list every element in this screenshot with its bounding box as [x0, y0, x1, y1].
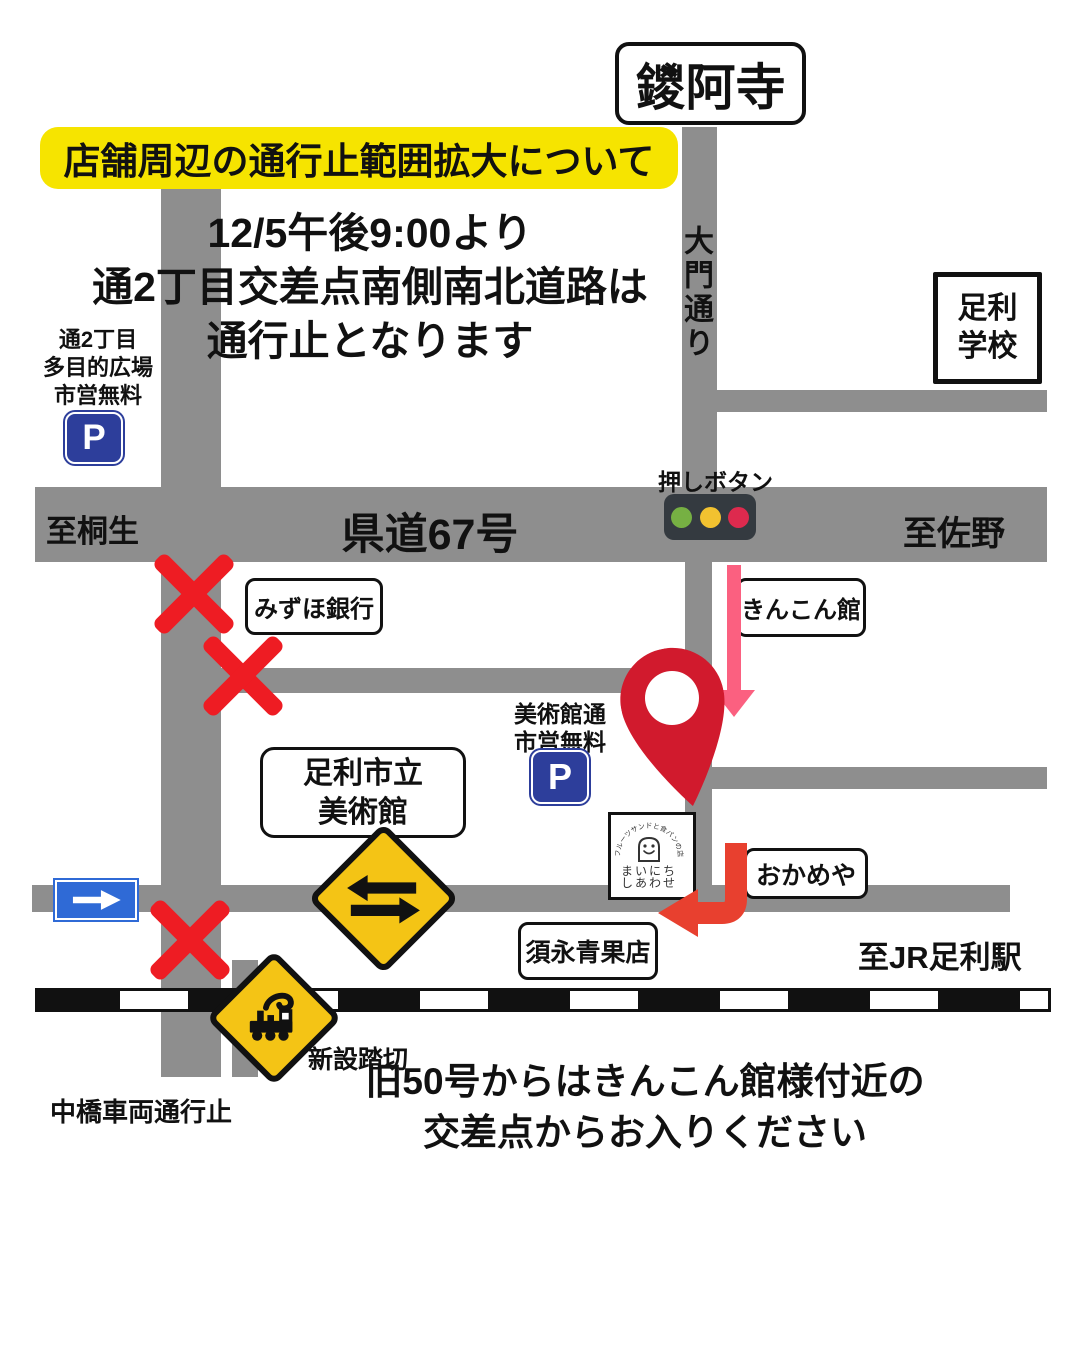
map-canvas: 鑁阿寺 店舗周辺の通行止範囲拡大について 12/5午後9:00より 通2丁目交差… [0, 0, 1080, 1350]
museum-sign: 足利市立 美術館 [260, 747, 466, 838]
parking-museum-label: 美術館通 市営無料 [503, 700, 617, 756]
okameya-sign: おかめや [744, 848, 868, 899]
kinkonkan-sign: きんこん館 [736, 578, 866, 637]
road-label-daimon-dori: 大門通り [682, 203, 717, 383]
notice-line-1: 12/5午後9:00より [60, 206, 680, 260]
grocer-sign: 須永青果店 [518, 922, 658, 980]
road-label-to-kiryu: 至桐生 [46, 506, 139, 551]
road-okameya-street [712, 767, 1047, 789]
notice-line-2: 通2丁目交差点南側南北道路は [60, 260, 680, 314]
road-kendo67 [35, 487, 1047, 562]
footer-note-line-1: 旧50号からはきんこん館様付近の [320, 1056, 970, 1107]
two-way-traffic-sign-icon [308, 823, 459, 974]
road-label-to-jr-station: 至JR足利駅 [858, 932, 1022, 977]
location-pin-icon [611, 639, 744, 816]
banner-title: 店舗周辺の通行止範囲拡大について [40, 127, 678, 189]
school-sign: 足利 学校 [933, 272, 1042, 384]
traffic-green-light [671, 507, 692, 528]
bank-sign: みずほ銀行 [245, 578, 383, 635]
entry-turn-left-arrow-icon [654, 843, 758, 951]
bridge-closed-note: 中橋車両通行止 [50, 1092, 232, 1129]
traffic-red-light [728, 507, 749, 528]
traffic-amber-light [700, 507, 721, 528]
train-icon [241, 988, 307, 1048]
road-label-kendo67: 県道67号 [330, 500, 530, 562]
railway-track [35, 988, 1051, 1012]
footer-note: 旧50号からはきんこん館様付近の 交差点からお入りください [320, 1056, 970, 1158]
push-button-label: 押しボタン [658, 463, 773, 497]
one-way-sign-icon [55, 880, 137, 920]
entry-arrow-down-icon [727, 565, 741, 693]
traffic-light-icon [664, 494, 756, 540]
road-school-street [717, 390, 1047, 412]
parking-icon: P [531, 750, 589, 804]
notice-text: 12/5午後9:00より 通2丁目交差点南側南北道路は 通行止となります [60, 206, 680, 368]
road-closed-x-icon [201, 634, 285, 718]
road-closed-x-icon [152, 552, 236, 636]
road-label-to-sano: 至佐野 [903, 506, 1005, 555]
road-closed-x-icon [148, 898, 232, 982]
temple-sign: 鑁阿寺 [615, 42, 806, 125]
temple-sign-label: 鑁阿寺 [636, 48, 786, 120]
parking-icon: P [65, 412, 123, 464]
footer-note-line-2: 交差点からお入りください [320, 1107, 970, 1158]
notice-line-3: 通行止となります [60, 314, 680, 368]
